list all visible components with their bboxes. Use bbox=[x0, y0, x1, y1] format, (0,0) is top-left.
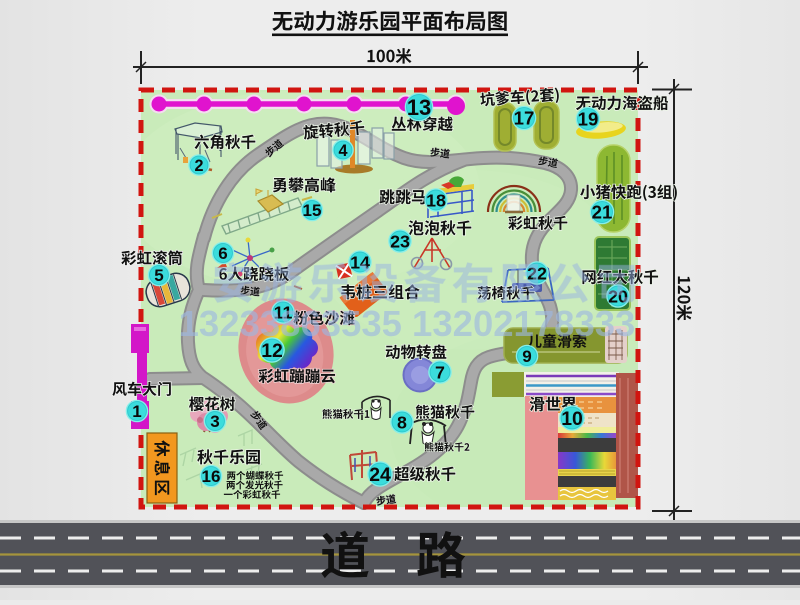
svg-text:9: 9 bbox=[522, 347, 531, 366]
svg-text:3: 3 bbox=[210, 412, 219, 431]
svg-text:1: 1 bbox=[132, 402, 141, 421]
svg-text:6: 6 bbox=[218, 244, 227, 263]
svg-text:23: 23 bbox=[390, 231, 410, 251]
svg-text:17: 17 bbox=[514, 108, 535, 129]
svg-text:13: 13 bbox=[407, 95, 431, 120]
svg-text:10: 10 bbox=[561, 408, 583, 430]
svg-text:18: 18 bbox=[426, 190, 446, 210]
svg-text:21: 21 bbox=[592, 202, 613, 223]
svg-text:8: 8 bbox=[397, 412, 407, 432]
svg-text:2: 2 bbox=[194, 157, 203, 175]
svg-text:19: 19 bbox=[578, 109, 599, 130]
svg-text:7: 7 bbox=[435, 362, 445, 382]
svg-text:16: 16 bbox=[202, 467, 221, 486]
svg-text:24: 24 bbox=[369, 464, 391, 486]
svg-text:4: 4 bbox=[338, 142, 347, 160]
svg-text:15: 15 bbox=[303, 201, 322, 220]
svg-text:13233863535 13202178333: 13233863535 13202178333 bbox=[179, 303, 636, 344]
svg-text:5: 5 bbox=[154, 266, 163, 285]
